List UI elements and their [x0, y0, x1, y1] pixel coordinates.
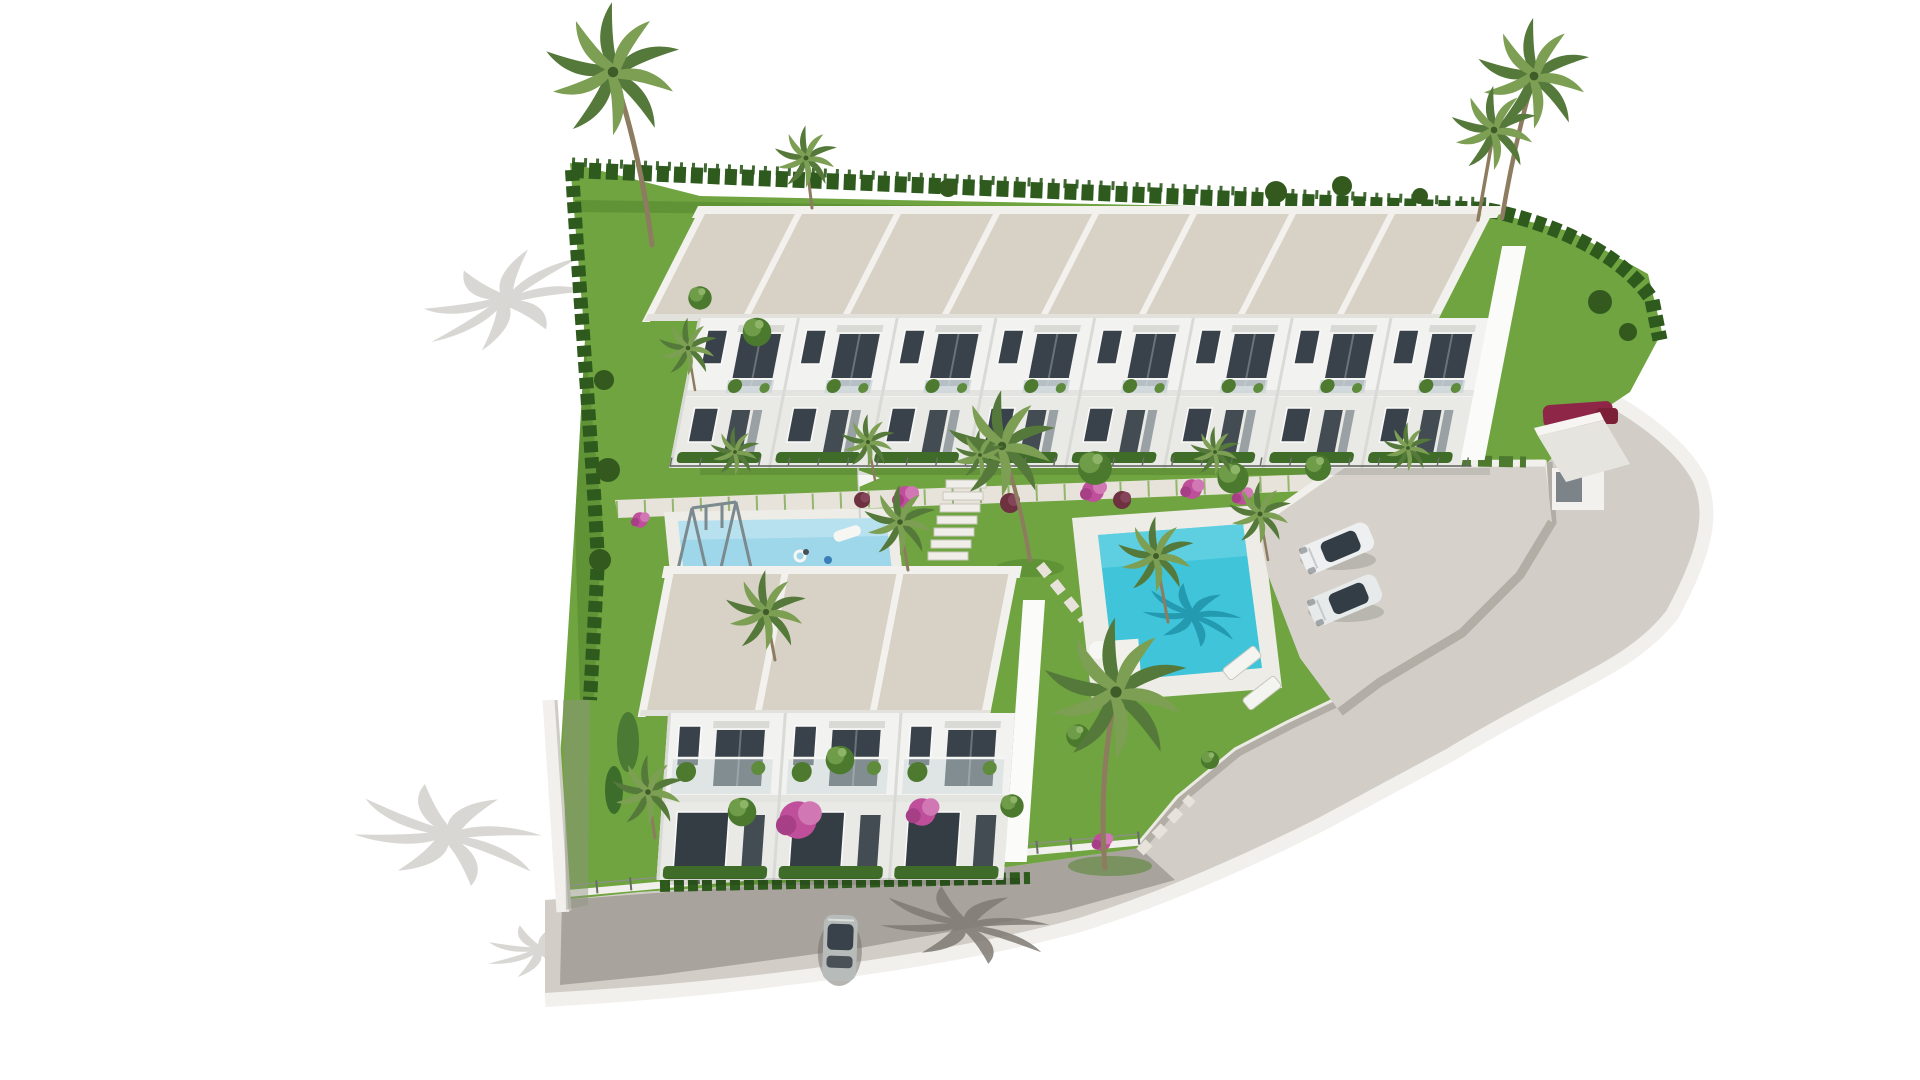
render-canvas: [0, 0, 1920, 1080]
site-plan-render: [0, 0, 1920, 1080]
cypress-tree: [617, 712, 639, 772]
left-boundary-wall: [549, 700, 590, 912]
bottom-row-roofs: [635, 566, 1022, 717]
bottom-row-base-shadow: [668, 878, 1020, 885]
cypress-tree: [605, 766, 623, 814]
top-row-roofs: [639, 206, 1503, 322]
